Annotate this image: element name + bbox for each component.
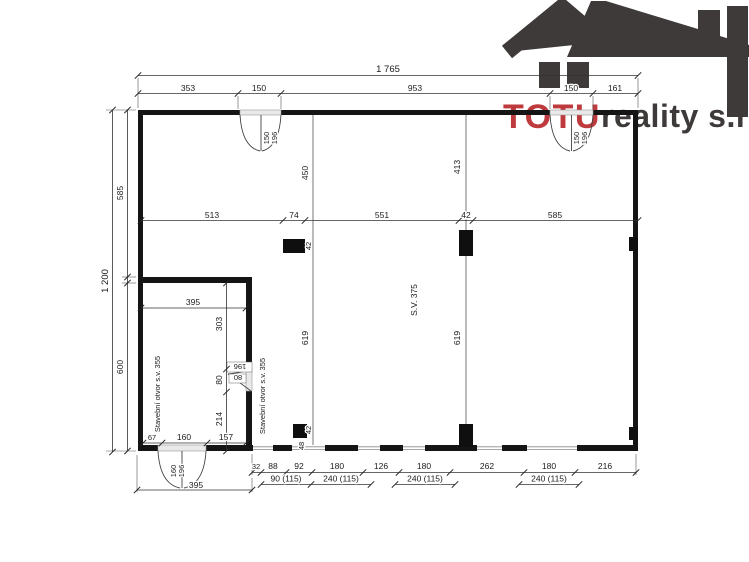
dim-label: 88 <box>268 461 278 471</box>
column <box>459 230 473 256</box>
dim-label: 180 <box>330 461 344 471</box>
dim-label: 160 <box>177 432 191 442</box>
dim-label: 413 <box>452 160 462 174</box>
dim-label: 126 <box>374 461 388 471</box>
window <box>358 447 380 450</box>
dim-label: 240 (115) <box>531 474 567 484</box>
dim-left-total: 1 200 <box>100 269 111 293</box>
dim-label: 150 <box>252 83 266 93</box>
dim-label: 600 <box>115 360 125 374</box>
dim-column-width: 42 <box>304 242 313 250</box>
room-right-wall <box>246 277 252 368</box>
dim-top-total: 1 765 <box>376 64 400 75</box>
room-width-label: 395 <box>186 297 200 307</box>
window <box>403 447 425 450</box>
dim-label: 303 <box>214 317 224 331</box>
door-dim-label: 196 <box>580 132 589 145</box>
column <box>283 239 305 253</box>
floor-plan-page: TOTU reality s.r.o. <box>0 0 749 562</box>
dim-label: 74 <box>289 210 299 220</box>
door-dim-label: 196 <box>270 132 279 145</box>
top-wall <box>138 110 240 115</box>
walls <box>138 110 638 451</box>
room-door-height-label: 196 <box>234 362 247 371</box>
dim-label: 513 <box>205 210 219 220</box>
dim-label: 92 <box>294 461 304 471</box>
dim-label: 216 <box>598 461 612 471</box>
dim-column-width: 42 <box>304 426 313 434</box>
top-wall <box>281 110 550 115</box>
room-opening-label-left: Stavební otvor s.v. 355 <box>153 356 162 432</box>
room-door-width-label: 80 <box>234 373 242 382</box>
roof-slope-chimney <box>567 1 749 57</box>
dim-label: 240 (115) <box>407 474 443 484</box>
column <box>629 427 638 440</box>
bottom-wall <box>502 445 527 451</box>
bottom-wall <box>380 445 403 451</box>
top-wall <box>593 110 638 115</box>
dim-label: 585 <box>548 210 562 220</box>
hall-clear-height-label: S.V. 375 <box>409 284 419 316</box>
room-opening-label-right: Stavební otvor s.v. 355 <box>258 358 267 434</box>
dim-label: 32 <box>252 462 260 471</box>
dim-label: 353 <box>181 83 195 93</box>
dim-label: 619 <box>300 331 310 345</box>
dim-label: 42 <box>461 210 471 220</box>
dim-label: 214 <box>214 412 224 426</box>
window <box>477 447 502 450</box>
room-top-wall <box>138 277 252 283</box>
dim-label: 551 <box>375 210 389 220</box>
bottom-wall <box>325 445 358 451</box>
dim-label: 67 <box>148 433 156 442</box>
bottom-wall <box>273 445 292 451</box>
floor-plan-drawing: TOTU reality s.r.o. <box>0 0 749 562</box>
bottom-wall <box>138 445 158 451</box>
logo: TOTU reality s.r.o. <box>503 1 749 136</box>
dim-label: 585 <box>115 186 125 200</box>
dim-label: 157 <box>219 432 233 442</box>
bottom-wall <box>577 445 638 451</box>
window <box>527 447 577 450</box>
logo-company-text: reality s.r.o. <box>601 98 749 134</box>
dim-column-offset: 48 <box>297 442 306 450</box>
dim-label: 240 (115) <box>323 474 359 484</box>
window <box>253 447 273 450</box>
dim-label: 161 <box>608 83 622 93</box>
column <box>629 237 638 251</box>
right-wall <box>633 110 638 451</box>
logo-window-left <box>539 62 560 88</box>
column <box>459 424 473 447</box>
dim-label: 180 <box>417 461 431 471</box>
door-dim-label: 196 <box>177 465 186 478</box>
dim-label: 150 <box>564 83 578 93</box>
dim-label: 262 <box>480 461 494 471</box>
dim-label: 619 <box>452 331 462 345</box>
dim-label: 450 <box>300 166 310 180</box>
dim-label: 90 (115) <box>270 474 301 484</box>
dim-label: 80 <box>214 375 224 385</box>
dim-label: 953 <box>408 83 422 93</box>
door-overall-label: 395 <box>189 480 203 490</box>
grid-lines <box>313 115 466 445</box>
dim-label: 180 <box>542 461 556 471</box>
